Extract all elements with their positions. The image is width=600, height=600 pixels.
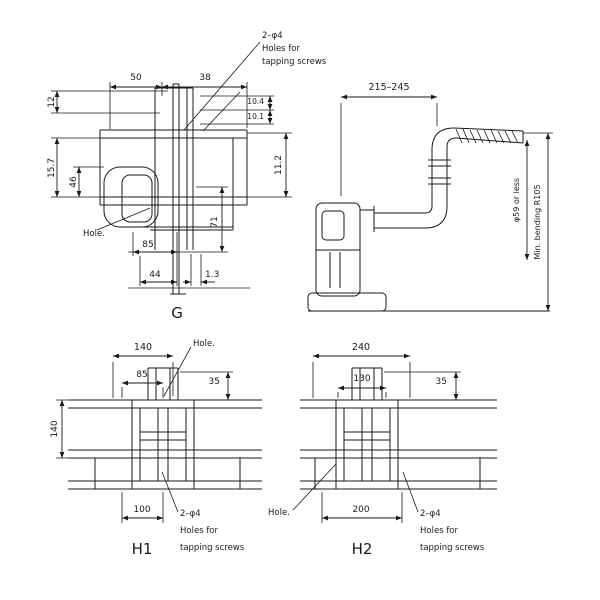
h1-dim-bottom: 100 [133,505,150,515]
g-dim-38: 38 [199,73,211,83]
side-dim-span: 215–245 [368,82,409,93]
g-dim-12: 12 [47,96,57,107]
g-part-outline [100,84,247,294]
h2-dim-bottom: 200 [352,505,369,515]
g-note-line2: Holes for [262,44,301,54]
view-h1: 140 85 140 35 100 Hole. 2–φ4 Holes for t… [50,339,262,558]
h1-note-line3: tapping screws [180,543,245,553]
h2-dim-side: 35 [436,377,447,387]
h2-note-line2: Holes for [420,526,459,536]
h1-hole-label: Hole. [193,339,215,349]
h1-note-line2: Holes for [180,526,219,536]
side-flexible-hatch [456,129,518,143]
g-view-label: G [171,304,183,322]
h2-note-line1: 2–φ4 [420,509,441,519]
h1-extension-lines [56,362,233,523]
h1-view-label: H1 [132,540,153,558]
g-dim-46: 46 [69,176,79,188]
g-hole-label: Hole. [83,229,105,239]
h1-note-line1: 2–φ4 [180,509,201,519]
g-dim-44: 44 [149,270,161,280]
view-side: 215–245 φ59 or less Min. bending R105 [308,82,553,311]
side-dim-outer: Min. bending R105 [533,184,542,259]
g-dim-50: 50 [130,73,142,83]
h2-dim-inner-width: 130 [353,374,370,384]
g-dim-11-2: 11.2 [274,155,284,175]
view-h2: 240 130 35 200 Hole. 2–φ4 Holes for tapp… [268,342,497,558]
g-dim-71: 71 [210,216,220,227]
g-dim-1-3: 1.3 [205,270,219,280]
g-dim-85: 85 [142,240,153,250]
h2-view-label: H2 [352,540,373,558]
side-dim-inner: φ59 or less [512,178,521,222]
g-note-line1: 2–φ4 [262,31,283,41]
h2-dim-width: 240 [352,342,370,353]
drawing-canvas: 50 38 12 15.7 46 10.4 10.1 71 11.2 85 44… [0,0,600,600]
g-dim-15-7: 15.7 [47,158,57,178]
g-dim-10-4: 10.4 [247,97,264,106]
h1-dim-side: 35 [209,377,220,387]
h1-dim-width: 140 [134,342,152,353]
dimension-drawing: 50 38 12 15.7 46 10.4 10.1 71 11.2 85 44… [0,0,600,600]
h1-dimension-lines [62,356,228,518]
h2-note-line3: tapping screws [420,543,485,553]
g-dim-10-1: 10.1 [247,112,264,121]
h2-hole-label: Hole. [268,508,290,518]
h1-dim-height: 140 [50,420,60,437]
g-note-line3: tapping screws [262,57,327,67]
h1-part-outline [68,368,262,489]
view-g: 50 38 12 15.7 46 10.4 10.1 71 11.2 85 44… [47,31,327,322]
h2-dimension-lines [313,356,456,518]
h1-dim-inner-width: 85 [136,370,147,380]
